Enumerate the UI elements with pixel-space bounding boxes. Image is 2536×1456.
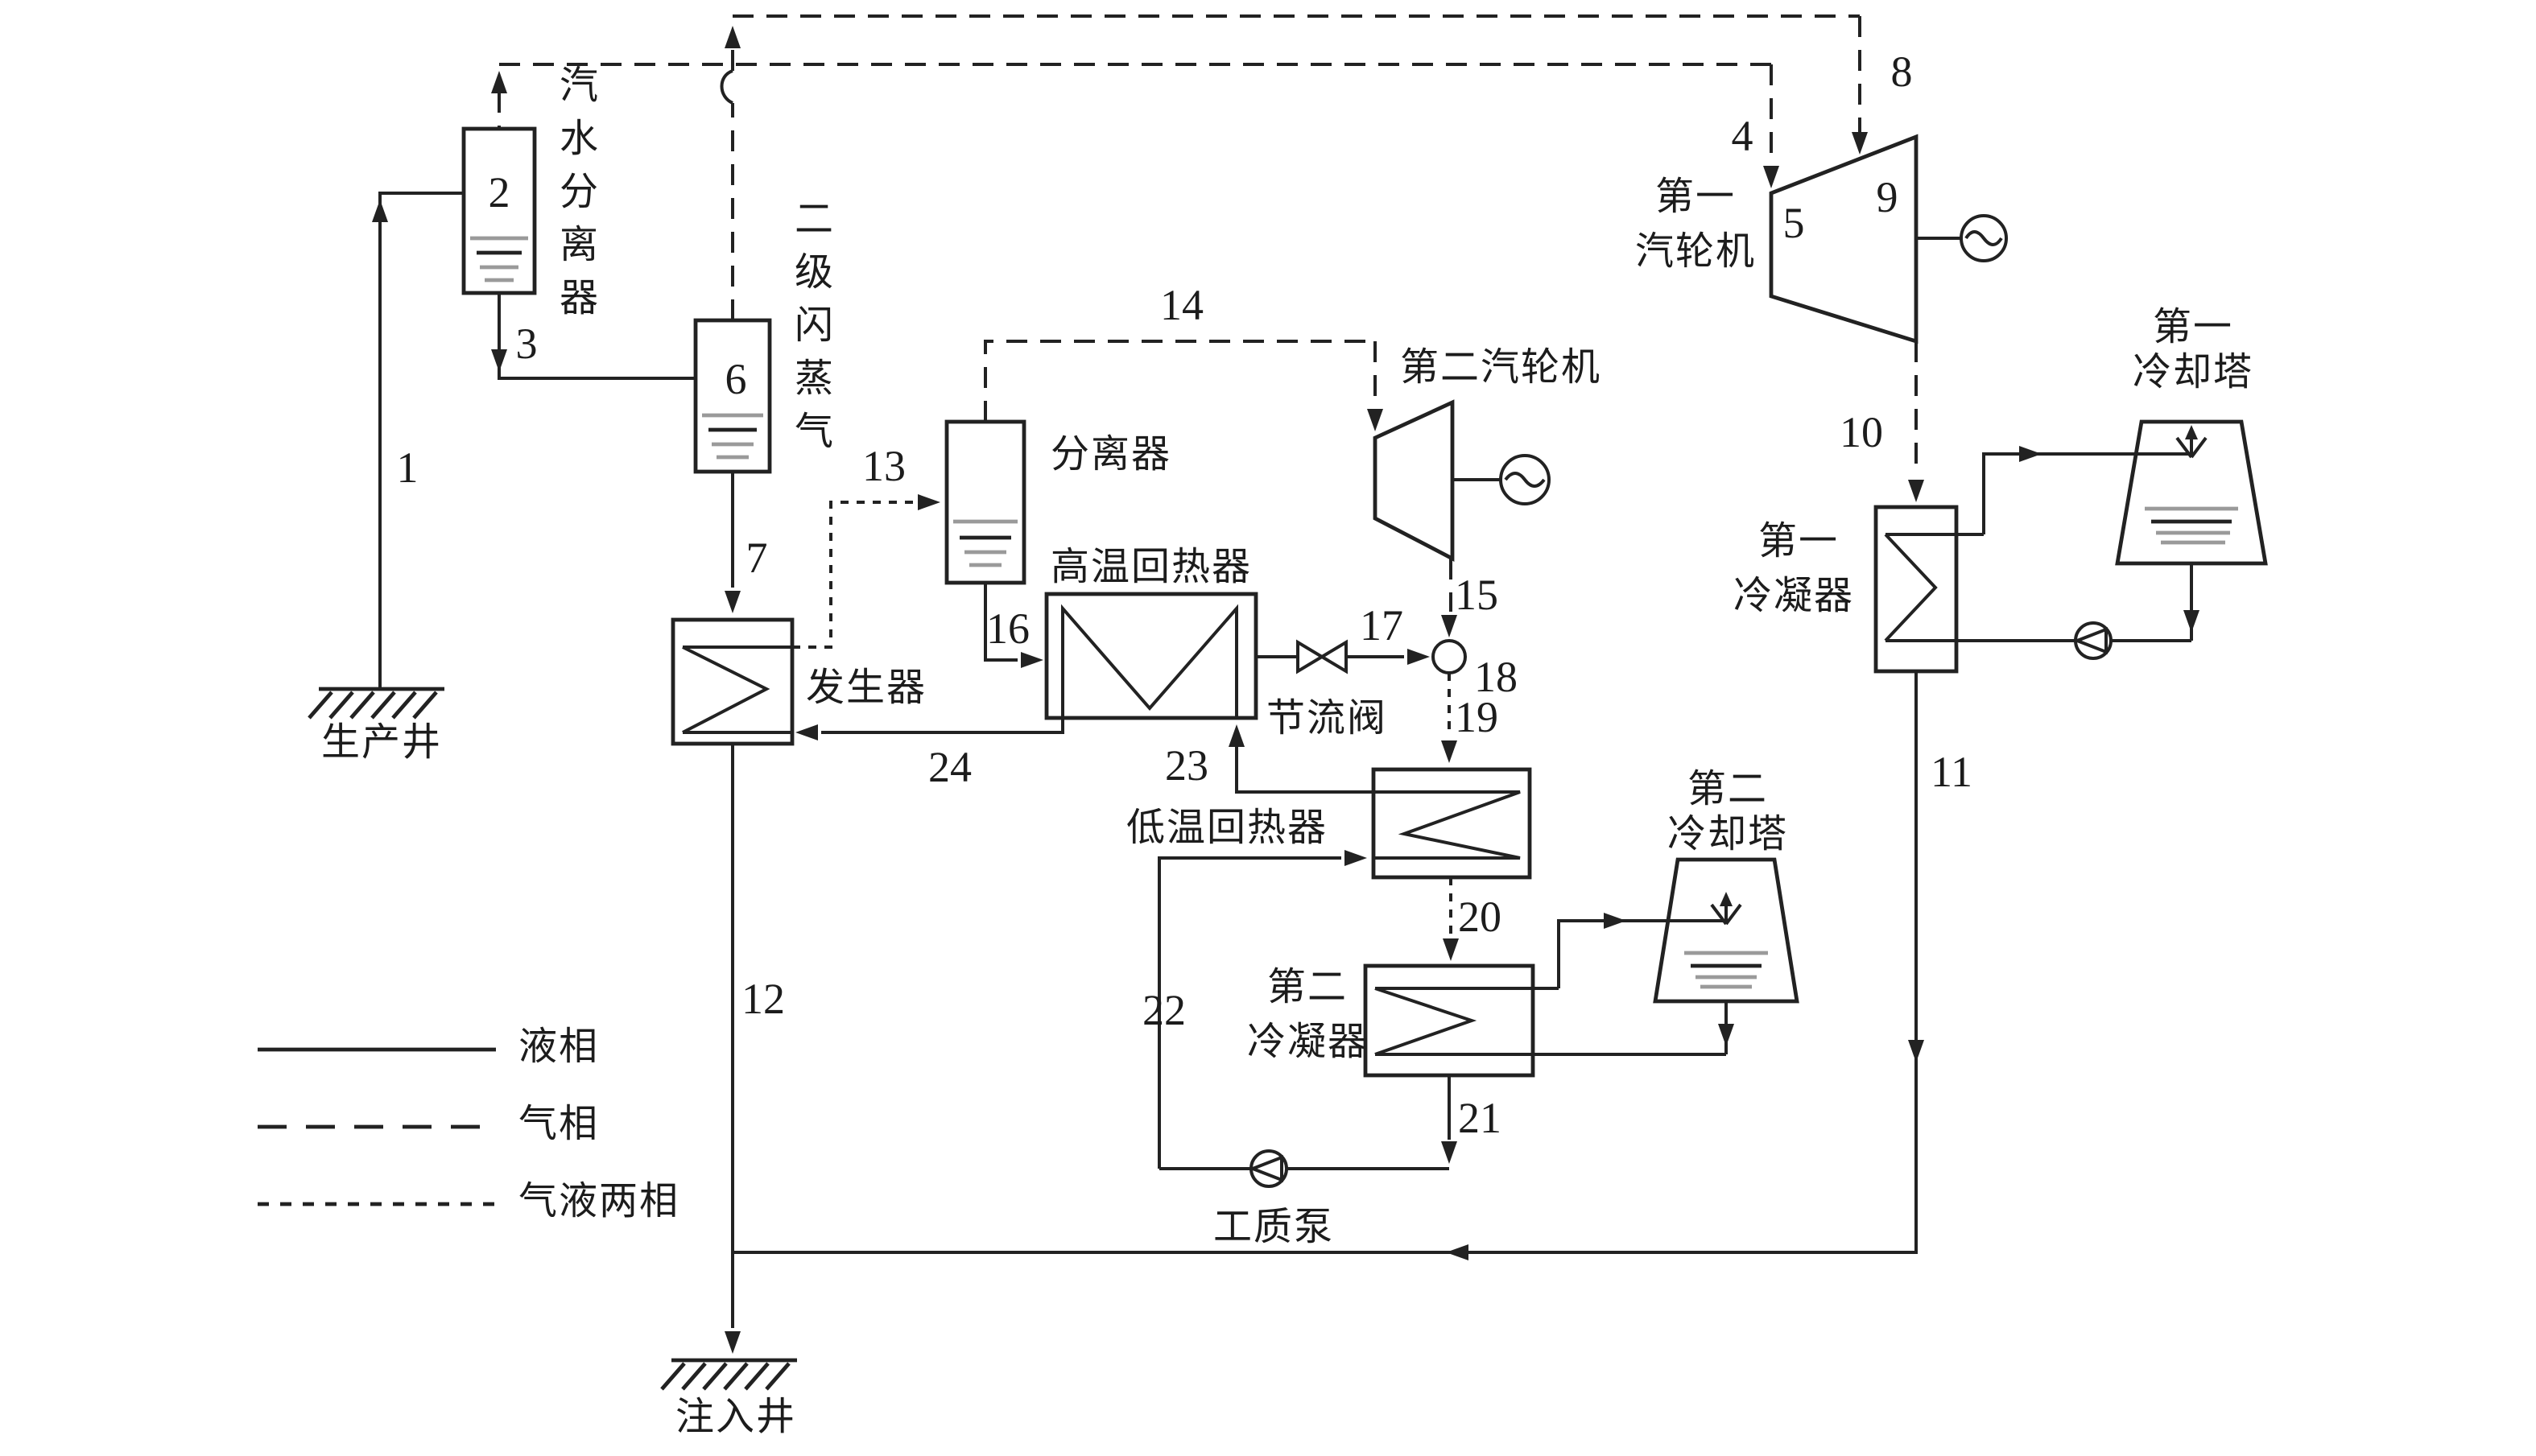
label-generator: 发生器 bbox=[806, 670, 927, 708]
stream-label-21: 21 bbox=[1458, 1097, 1501, 1140]
label-high-temp-regenerator: 高温回热器 bbox=[1051, 549, 1252, 588]
low-temp-regenerator-box bbox=[1373, 769, 1530, 877]
mixing-point-18 bbox=[1433, 641, 1465, 673]
stream-label-7: 7 bbox=[746, 537, 768, 580]
generator-exchanger bbox=[673, 620, 792, 744]
stream-label-2: 2 bbox=[489, 171, 510, 215]
first-turbine-generator bbox=[1916, 216, 2006, 261]
stream-label-5: 5 bbox=[1783, 202, 1805, 245]
label-first-cooling-tower-line2: 冷却塔 bbox=[2133, 354, 2253, 393]
stream-label-14: 14 bbox=[1160, 284, 1204, 328]
label-separator: 分离器 bbox=[1051, 436, 1171, 475]
stream-label-17: 17 bbox=[1360, 604, 1403, 648]
stream-label-8: 8 bbox=[1891, 51, 1913, 94]
stream-label-19: 19 bbox=[1455, 696, 1498, 740]
label-second-cooling-tower-line1: 第二 bbox=[1687, 771, 1768, 810]
tower-spray-arrowheads bbox=[1720, 425, 2198, 906]
stream-label-4: 4 bbox=[1732, 115, 1753, 159]
label-first-turbine-line1: 第一 bbox=[1655, 179, 1736, 217]
stream-label-24: 24 bbox=[928, 746, 972, 790]
second-turbine-generator bbox=[1452, 456, 1549, 504]
second-cooling-tower-symbol bbox=[1655, 860, 1797, 1001]
cooling-water-pump-icon bbox=[2075, 623, 2111, 658]
legend-label-liquid-phase: 液相 bbox=[518, 1029, 599, 1067]
process-flow-diagram: 1 2 3 4 5 6 7 8 9 10 11 12 13 14 15 16 1… bbox=[0, 0, 2536, 1456]
legend-label-two-phase: 气液两相 bbox=[518, 1183, 679, 1222]
stream-label-10: 10 bbox=[1840, 411, 1883, 455]
flow-arrowheads bbox=[372, 26, 2199, 1354]
label-first-cooling-tower-line1: 第一 bbox=[2153, 309, 2233, 348]
gas-phase-lines bbox=[499, 16, 1916, 612]
high-temp-regenerator-box bbox=[1047, 594, 1256, 718]
throttle-valve-symbol bbox=[1298, 642, 1346, 671]
legend-line-samples bbox=[258, 1050, 496, 1204]
first-condenser-box bbox=[1876, 507, 1956, 671]
stream-label-1: 1 bbox=[397, 447, 419, 490]
line-crossover-jump bbox=[722, 71, 733, 103]
stream-label-12: 12 bbox=[741, 978, 785, 1021]
stream-label-9: 9 bbox=[1877, 176, 1898, 220]
label-throttle-valve: 节流阀 bbox=[1266, 700, 1387, 739]
label-second-turbine: 第二汽轮机 bbox=[1400, 349, 1601, 388]
stream-label-13: 13 bbox=[862, 445, 906, 489]
second-condenser-box bbox=[1365, 966, 1533, 1075]
label-low-temp-regenerator: 低温回热器 bbox=[1126, 810, 1328, 848]
label-working-fluid-pump: 工质泵 bbox=[1213, 1209, 1334, 1248]
separator-vessel bbox=[947, 422, 1024, 583]
stream-label-20: 20 bbox=[1458, 896, 1501, 939]
working-fluid-pump-icon bbox=[1251, 1151, 1287, 1186]
stream-label-23: 23 bbox=[1165, 744, 1208, 788]
production-well-ground bbox=[309, 689, 444, 718]
label-injection-well: 注入井 bbox=[675, 1399, 796, 1437]
label-second-condenser-line2: 冷凝器 bbox=[1247, 1024, 1368, 1062]
label-steam-water-separator: 汽水分离器 bbox=[554, 64, 593, 330]
stream-label-16: 16 bbox=[986, 608, 1030, 651]
stream-label-6: 6 bbox=[725, 358, 747, 402]
label-production-well: 生产井 bbox=[321, 724, 442, 763]
stream-label-15: 15 bbox=[1455, 574, 1498, 617]
label-first-condenser-line2: 冷凝器 bbox=[1733, 578, 1854, 617]
stream-label-22: 22 bbox=[1142, 989, 1186, 1033]
stream-label-11: 11 bbox=[1931, 751, 1972, 794]
label-second-condenser-line1: 第二 bbox=[1267, 969, 1348, 1008]
stream-label-3: 3 bbox=[516, 323, 538, 366]
label-first-turbine-line2: 汽轮机 bbox=[1635, 233, 1756, 272]
second-turbine-symbol bbox=[1375, 402, 1452, 559]
liquid-phase-lines bbox=[380, 193, 2191, 1328]
legend-label-gas-phase: 气相 bbox=[518, 1106, 599, 1145]
label-second-cooling-tower-line2: 冷却塔 bbox=[1667, 816, 1788, 855]
label-first-condenser-line1: 第一 bbox=[1758, 523, 1839, 562]
label-secondary-flash-steam: 二级闪蒸气 bbox=[789, 198, 828, 464]
injection-well-ground bbox=[662, 1360, 797, 1389]
